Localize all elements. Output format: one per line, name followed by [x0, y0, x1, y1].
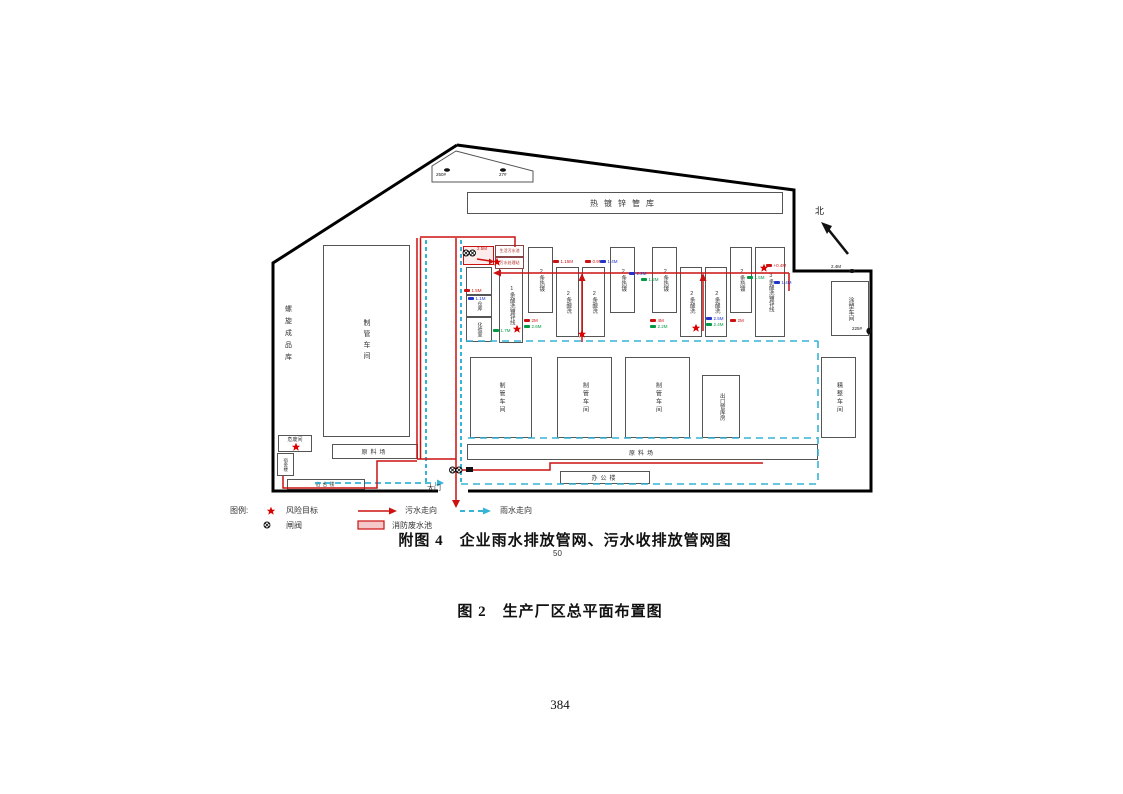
building-label: 1条酸洗镀锌线 — [508, 286, 514, 325]
box-label: 生活污水池 — [500, 248, 520, 254]
building-label: 2条酸洗 — [713, 291, 719, 314]
building-label: 2条热镀 — [662, 269, 668, 292]
dim-marker: 1.5M — [464, 289, 482, 294]
gate-label: 大门 — [427, 483, 441, 493]
building-hot-galv: 2条热镀 — [528, 247, 553, 313]
building-export-pipe-store: 出口管库房 — [702, 375, 740, 438]
dim-marker: 1.5M — [747, 276, 765, 281]
building-pickling: 2条酸洗 — [582, 267, 605, 337]
building-label: 制管车间 — [655, 382, 661, 414]
sewage-treatment-box: 污水处理站 — [495, 257, 524, 269]
legend-rain-flow: 雨水走向 — [500, 505, 532, 516]
building-hot-galv: 2条热镀 — [610, 247, 635, 313]
building-label: 2条热镀 — [538, 269, 544, 292]
figure2-caption: 图 2 生产厂区总平面布置图 — [330, 600, 790, 621]
building-lab: 化验室 — [466, 317, 492, 342]
building-label: 制管车间 — [363, 319, 370, 363]
domestic-sewage-pool-box: 生活污水池 — [495, 245, 524, 257]
dim-marker: 2M — [524, 319, 538, 324]
document-page: 喷漆车间 热镀锌管库 螺旋成品库 制管车间 生活污水池 污水处理站 仓库 化验室… — [0, 0, 1123, 794]
legend-valve-icon — [264, 522, 270, 528]
building-label: 2条热镀 — [620, 269, 626, 292]
building-paint-workshop: 喷漆车间 — [443, 155, 487, 165]
building-label: 宿舍楼 — [283, 458, 288, 472]
legend-gate-valve: 闸阀 — [286, 520, 302, 531]
building-label: 2条热镀 — [738, 269, 744, 292]
building-label: 原料场 — [361, 447, 388, 456]
building-label: 涂塑车间 — [847, 297, 853, 321]
valve-icon — [456, 467, 462, 473]
figure4-caption: 附图 4 企业雨水排放管网、污水收排放管网图 — [330, 529, 800, 550]
building-finishing-workshop: 精整车间 — [821, 357, 856, 438]
building-label: 3条酸洗镀锌线 — [767, 273, 773, 312]
legend-pool-icon — [358, 521, 384, 529]
dim-marker: 225# — [852, 327, 862, 332]
figure4-footnote: 50 — [553, 549, 562, 558]
building-label: 热镀锌管库 — [590, 198, 660, 209]
box-label: 污水处理站 — [500, 260, 520, 266]
dim-marker: 2M — [730, 319, 744, 324]
building-label: 仓库 — [477, 301, 482, 311]
dim-marker: 2.2M — [629, 272, 647, 277]
building-label: 原料场 — [629, 448, 656, 457]
legend-risk-target: 风险目标 — [286, 505, 318, 516]
dim-marker: 2.6M — [524, 325, 542, 330]
dim-marker: 1.4M — [600, 260, 618, 265]
building-label: 办公楼 — [591, 473, 618, 482]
building-label: 2条酸洗 — [565, 291, 571, 314]
building-label: 化验室 — [477, 322, 482, 337]
building-pipe-workshop: 制管车间 — [625, 357, 690, 438]
building-label: 2条酸洗 — [591, 291, 597, 314]
dim-marker: 2.5M — [706, 317, 724, 322]
building-galv-pipe-store: 热镀锌管库 — [467, 192, 783, 214]
building-coating-workshop: 涂塑车间 — [831, 281, 869, 336]
dim-marker: 1.2M — [641, 278, 659, 283]
legend-sewage-flow: 污水走向 — [405, 505, 437, 516]
legend-title: 图例: — [230, 505, 248, 516]
building-pickling: 2条酸洗 — [556, 267, 579, 337]
dim-marker: 250# — [436, 173, 446, 178]
building-raw-material-yard: 原料场 — [467, 444, 818, 460]
building-label: 2条酸洗 — [688, 291, 694, 314]
dim-marker: 1.7M — [493, 329, 511, 334]
page-number: 384 — [520, 697, 600, 713]
dim-marker: 4M — [650, 319, 664, 324]
dim-marker: 1.1M — [468, 297, 486, 302]
building-office: 办公楼 — [560, 471, 650, 484]
dim-marker: 1.4M — [774, 281, 792, 286]
building-pickling: 2条酸洗 — [680, 267, 702, 337]
building-pipe-workshop: 制管车间 — [470, 357, 532, 438]
valve-icon — [450, 467, 456, 473]
dim-marker: 27# — [499, 173, 507, 178]
building-label: 出口管库房 — [718, 393, 724, 421]
building-hazardous-waste-room: 危废间 — [278, 435, 312, 452]
dim-marker: 2.2M — [650, 325, 668, 330]
north-label: 北 — [815, 204, 824, 217]
building-pipe-workshop: 制管车间 — [557, 357, 612, 438]
dim-marker: 2.5M — [477, 247, 487, 252]
north-arrow-icon — [821, 222, 848, 254]
dim-marker: 1.15M — [553, 260, 573, 265]
building-label: 螺旋成品库 — [285, 305, 292, 365]
building-label: 精整车间 — [836, 382, 842, 414]
dim-marker: 2.4M — [706, 323, 724, 328]
building-label: 制管车间 — [582, 382, 588, 414]
building-dormitory: 宿舍楼 — [287, 479, 365, 490]
building-label: 制管车间 — [498, 382, 504, 414]
dim-marker: 2.4M — [831, 265, 841, 270]
building-label: 喷漆车间 — [454, 156, 476, 164]
building-spiral-store: 螺旋成品库 — [279, 282, 297, 387]
building-pipe-workshop-upper: 制管车间 — [323, 245, 410, 437]
building-line3: 3条酸洗镀锌线 — [755, 247, 785, 337]
legend-star-icon — [267, 507, 275, 515]
pump-block — [466, 467, 473, 472]
dim-marker: +0.4M — [766, 264, 786, 269]
building-label: 危废间 — [287, 436, 302, 443]
building-raw-material-yard: 原料场 — [332, 444, 418, 459]
building-dormitory-small: 宿舍楼 — [277, 453, 294, 476]
building-label: 宿舍楼 — [315, 481, 336, 488]
